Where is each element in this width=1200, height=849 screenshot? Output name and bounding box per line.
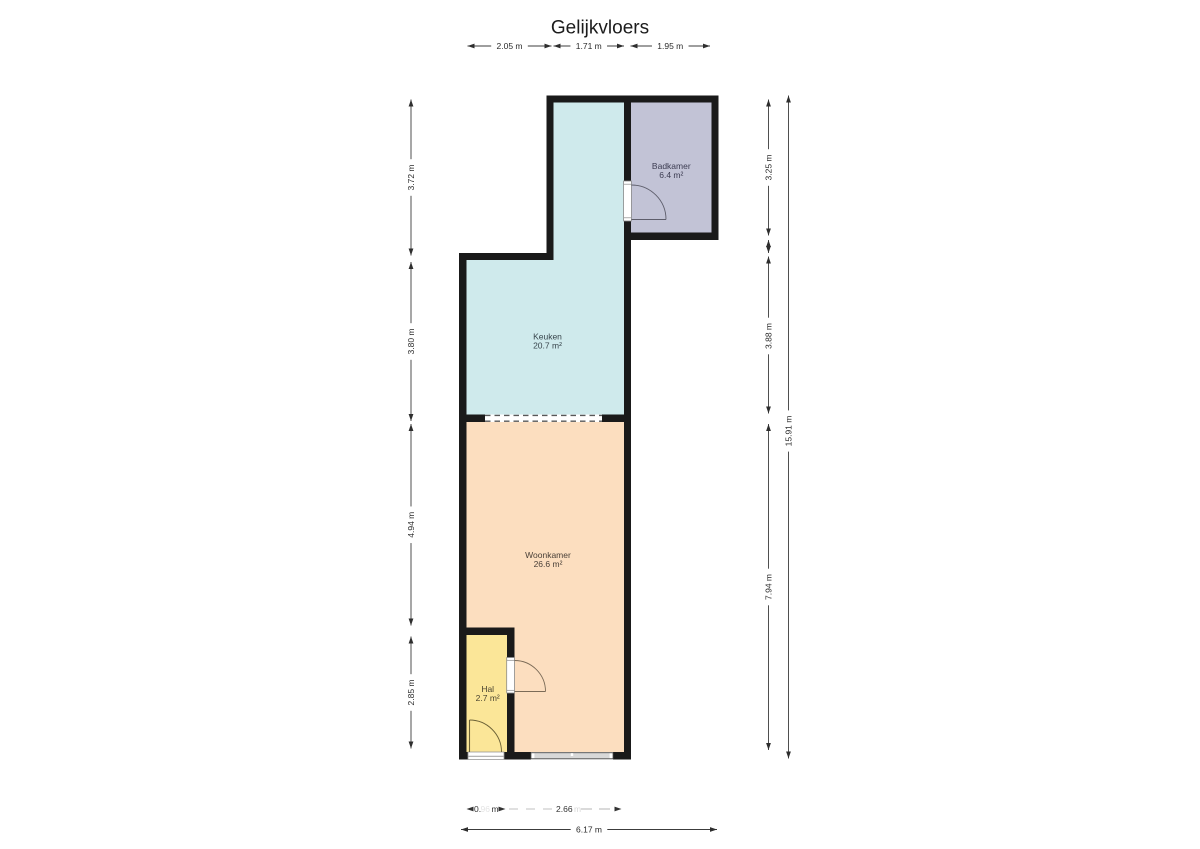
svg-text:7.94 m: 7.94 m — [764, 574, 774, 600]
svg-text:2.85 m: 2.85 m — [406, 680, 416, 706]
svg-text:6.4 m²: 6.4 m² — [659, 170, 683, 180]
svg-text:4.94 m: 4.94 m — [406, 512, 416, 538]
svg-text:3.72 m: 3.72 m — [406, 165, 416, 191]
svg-text:3.25 m: 3.25 m — [764, 155, 774, 181]
svg-text:20.7 m²: 20.7 m² — [533, 341, 562, 351]
svg-text:3.80 m: 3.80 m — [406, 329, 416, 355]
svg-text:1.95 m: 1.95 m — [657, 41, 683, 51]
svg-text:6.17 m: 6.17 m — [576, 825, 602, 835]
svg-text:15.91 m: 15.91 m — [784, 416, 794, 447]
svg-text:2.7 m²: 2.7 m² — [476, 693, 500, 703]
svg-text:26.6 m²: 26.6 m² — [534, 559, 563, 569]
svg-text:m: m — [492, 804, 499, 814]
svg-text:96: 96 — [481, 804, 491, 814]
svg-text:2.66: 2.66 — [556, 804, 573, 814]
svg-text:m: m — [574, 804, 581, 814]
svg-text:3.88 m: 3.88 m — [764, 323, 774, 349]
svg-text:2.05 m: 2.05 m — [497, 41, 523, 51]
svg-text:Gelijkvloers: Gelijkvloers — [551, 18, 649, 39]
svg-text:1.71 m: 1.71 m — [576, 41, 602, 51]
